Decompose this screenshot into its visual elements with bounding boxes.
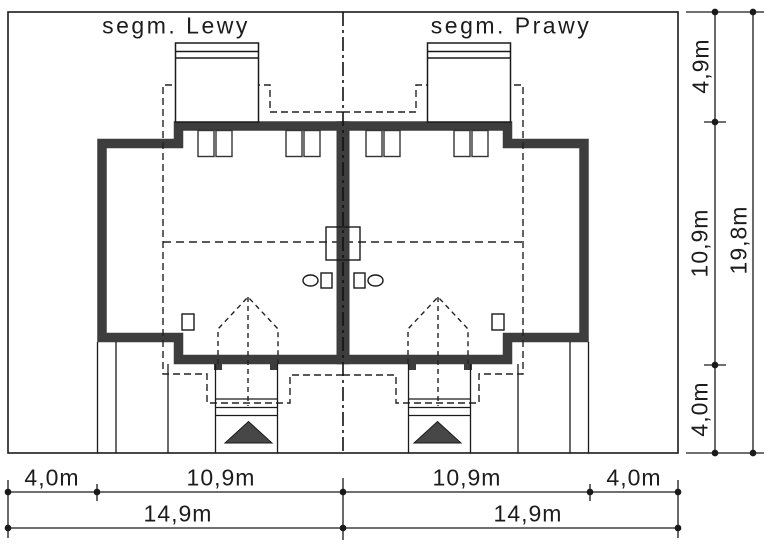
right-dormer (428, 43, 511, 122)
segment-right-title: segm. Prawy (431, 15, 591, 38)
dim-tick (94, 489, 99, 494)
roof-window (304, 131, 320, 157)
site-plan-drawing: segm. Lewy segm. Prawy 4,0m 10,9m 10,9m … (0, 0, 770, 545)
dim-tick (587, 489, 592, 494)
dim-label-right-margin: 4,0m (606, 467, 661, 490)
dim-label-vertical-top: 4,9m (690, 38, 713, 93)
roof-window (384, 131, 400, 157)
roof-window (286, 131, 302, 157)
dim-tick (675, 489, 680, 494)
porch-stub (270, 364, 278, 370)
segment-left-title: segm. Lewy (102, 15, 250, 38)
dim-label-left-width: 10,9m (187, 467, 256, 490)
roof-window (198, 131, 214, 157)
left-chimney (182, 314, 194, 330)
dim-tick (5, 489, 10, 494)
dim-label-vertical-middle: 10,9m (689, 209, 712, 278)
dim-label-left-margin: 4,0m (24, 467, 79, 490)
vent-box (321, 273, 332, 288)
dim-label-vertical-bottom: 4,0m (689, 381, 712, 436)
left-dormer (176, 43, 259, 122)
dim-tick (712, 450, 717, 455)
dim-tick (712, 362, 717, 367)
dim-label-right-width: 10,9m (433, 467, 502, 490)
dim-tick (712, 119, 717, 124)
plan-linework (0, 0, 770, 545)
dim-tick (750, 9, 755, 14)
vent-box (354, 273, 365, 288)
dim-tick (340, 525, 345, 530)
dim-tick (675, 525, 680, 530)
roof-window (454, 131, 470, 157)
horizontal-dimension-lines (5, 478, 680, 540)
right-chimney (492, 314, 504, 330)
roof-window (366, 131, 382, 157)
dim-tick (712, 9, 717, 14)
porch-stub (408, 364, 416, 370)
dim-label-right-total: 14,9m (494, 503, 563, 526)
dim-label-left-total: 14,9m (144, 503, 213, 526)
dim-tick (340, 489, 345, 494)
roof-window (472, 131, 488, 157)
dim-tick (5, 525, 10, 530)
roof-window (216, 131, 232, 157)
dim-label-vertical-total: 19,8m (728, 206, 751, 275)
dim-tick (750, 450, 755, 455)
